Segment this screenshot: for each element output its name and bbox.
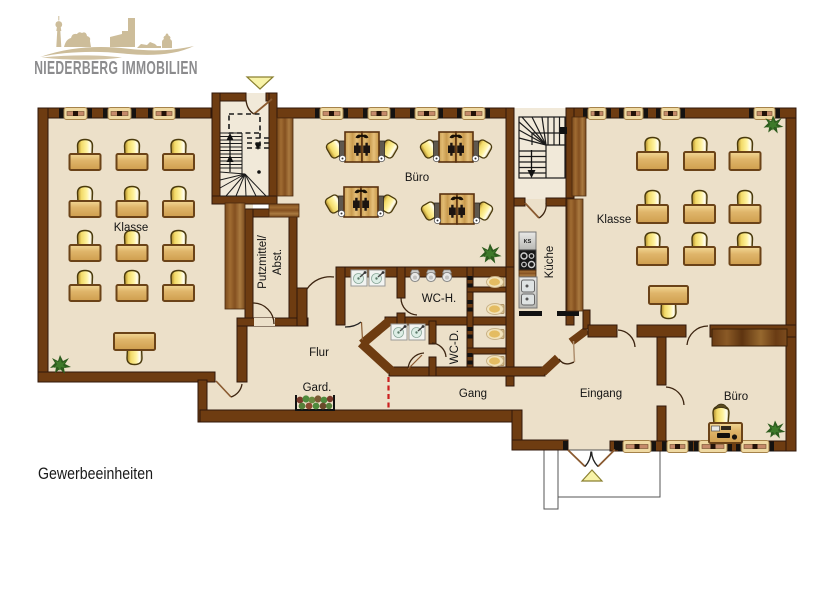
svg-text:WC-D.: WC-D.: [449, 330, 461, 365]
svg-text:Küche: Küche: [544, 246, 556, 279]
svg-text:Putzmittel/: Putzmittel/: [257, 234, 269, 288]
svg-text:Klasse: Klasse: [597, 214, 632, 226]
svg-text:Eingang: Eingang: [580, 388, 622, 400]
svg-text:WC-H.: WC-H.: [422, 293, 457, 305]
svg-text:Gang: Gang: [459, 388, 487, 400]
svg-text:KS: KS: [524, 239, 532, 245]
svg-text:NIEDERBERG IMMOBILIEN: NIEDERBERG IMMOBILIEN: [34, 59, 198, 79]
svg-text:Büro: Büro: [724, 391, 748, 403]
svg-text:Flur: Flur: [309, 347, 329, 359]
svg-text:Gewerbeeinheiten: Gewerbeeinheiten: [38, 465, 153, 483]
svg-text:Klasse: Klasse: [114, 222, 149, 234]
svg-text:Abst.: Abst.: [272, 249, 284, 275]
svg-text:Büro: Büro: [405, 172, 429, 184]
svg-text:Gard.: Gard.: [303, 382, 332, 394]
